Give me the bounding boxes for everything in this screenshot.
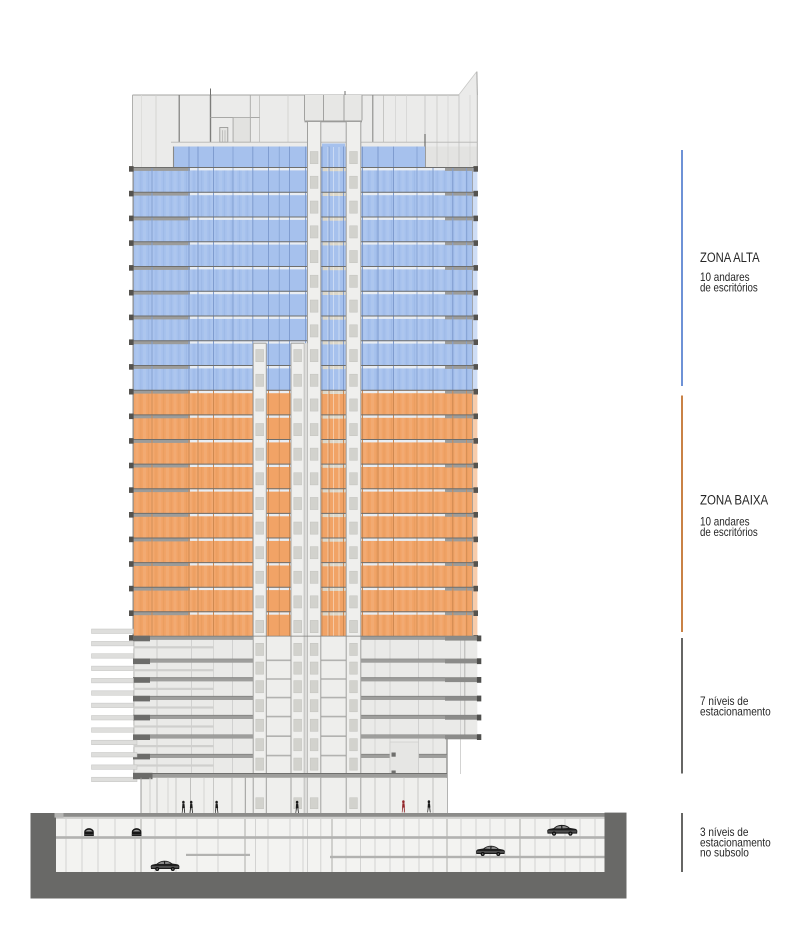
svg-text:de escritórios: de escritórios — [700, 281, 758, 295]
svg-text:de escritórios: de escritórios — [700, 525, 758, 539]
svg-text:ZONA BAIXA: ZONA BAIXA — [700, 493, 769, 509]
svg-text:estacionamento: estacionamento — [700, 705, 771, 719]
svg-text:no subsolo: no subsolo — [700, 846, 749, 860]
svg-text:ZONA ALTA: ZONA ALTA — [700, 250, 760, 266]
